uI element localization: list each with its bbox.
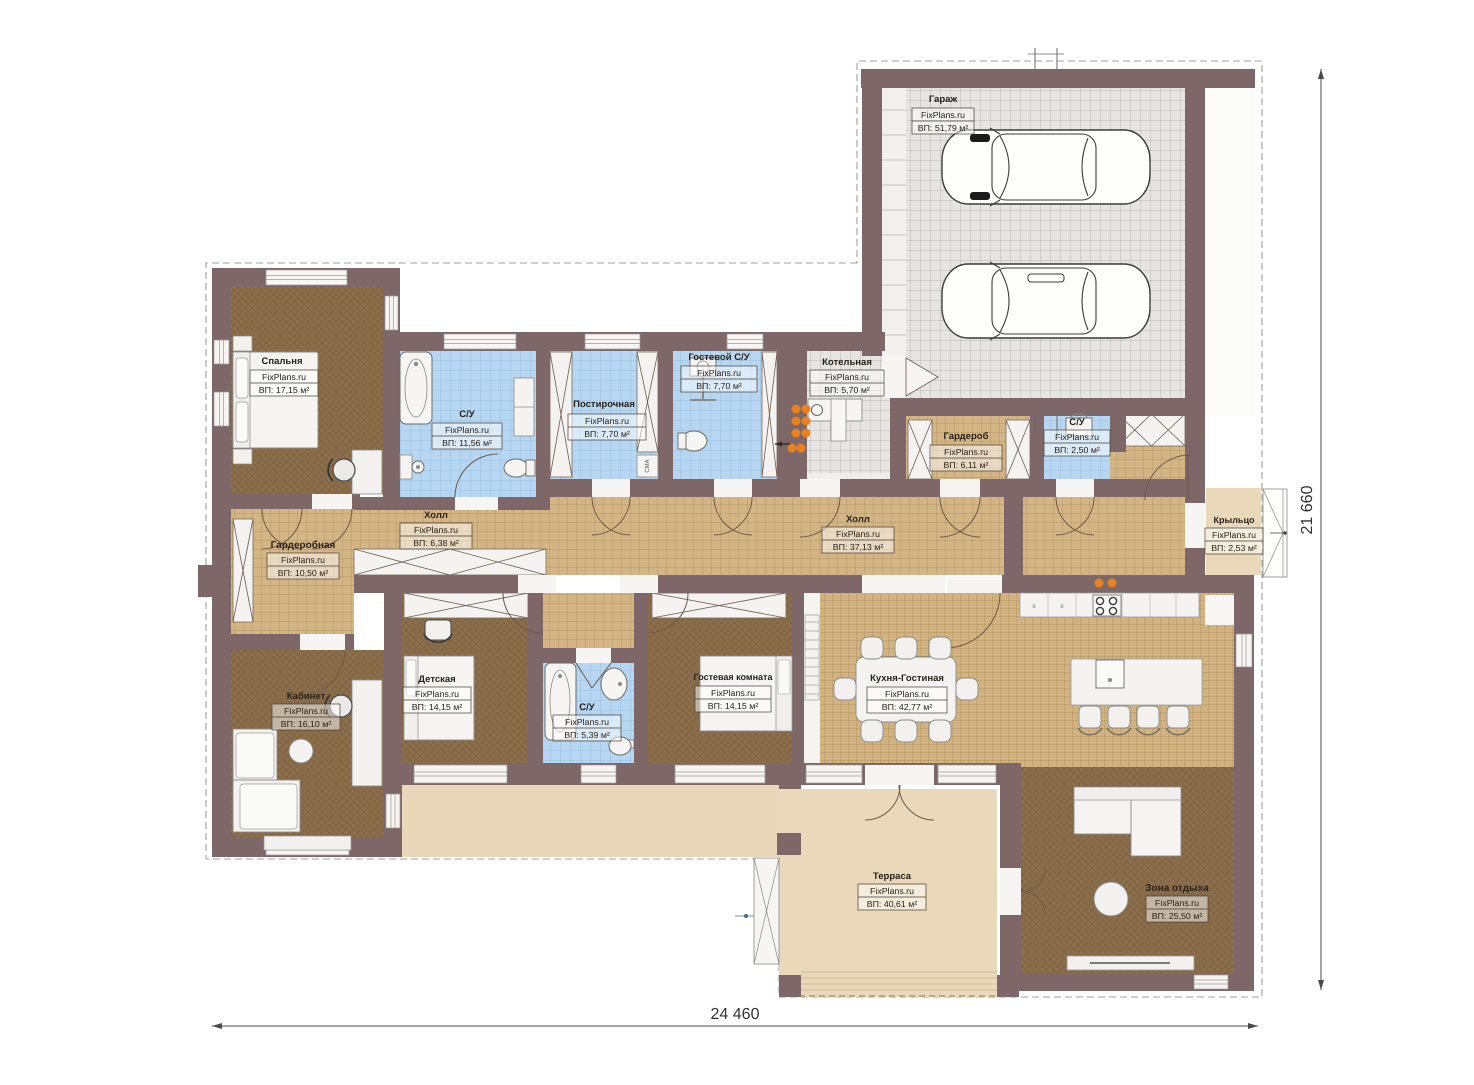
svg-text:Терраса: Терраса — [873, 871, 912, 882]
svg-text:FixPlans.ru: FixPlans.ru — [445, 425, 489, 435]
svg-text:FixPlans.ru: FixPlans.ru — [1212, 530, 1256, 540]
svg-text:ВП: 37,13 м²: ВП: 37,13 м² — [833, 542, 884, 552]
svg-text:Гардероб: Гардероб — [944, 431, 989, 442]
svg-text:ВП: 6,11 м²: ВП: 6,11 м² — [944, 460, 989, 470]
svg-text:FixPlans.ru: FixPlans.ru — [944, 447, 988, 457]
svg-text:ВП: 2,50 м²: ВП: 2,50 м² — [1054, 445, 1100, 455]
svg-text:FixPlans.ru: FixPlans.ru — [415, 689, 459, 699]
svg-text:ВП: 10,50 м²: ВП: 10,50 м² — [278, 568, 329, 578]
svg-text:Крыльцо: Крыльцо — [1214, 515, 1255, 525]
svg-text:24 460: 24 460 — [711, 1006, 760, 1023]
svg-text:ВП: 51,79 м²: ВП: 51,79 м² — [918, 123, 969, 133]
svg-text:FixPlans.ru: FixPlans.ru — [284, 706, 328, 716]
svg-text:ВП: 5,70 м²: ВП: 5,70 м² — [824, 385, 870, 395]
svg-text:С/У: С/У — [579, 702, 595, 713]
svg-text:FixPlans.ru: FixPlans.ru — [711, 688, 755, 698]
svg-text:FixPlans.ru: FixPlans.ru — [1155, 898, 1199, 908]
svg-text:ВП: 11,56 м²: ВП: 11,56 м² — [442, 438, 492, 448]
svg-text:ВП: 25,50 м²: ВП: 25,50 м² — [1152, 911, 1203, 921]
svg-text:Гостевой С/У: Гостевой С/У — [688, 352, 749, 363]
svg-text:FixPlans.ru: FixPlans.ru — [281, 555, 325, 565]
svg-text:С/У: С/У — [1069, 417, 1085, 428]
svg-text:ВП: 6,38 м²: ВП: 6,38 м² — [413, 538, 459, 548]
svg-text:Холл: Холл — [846, 514, 870, 525]
svg-text:FixPlans.ru: FixPlans.ru — [697, 368, 741, 378]
svg-text:Котельная: Котельная — [822, 357, 872, 368]
svg-text:Спальня: Спальня — [261, 356, 302, 367]
svg-text:ВП: 14,15 м²: ВП: 14,15 м² — [708, 701, 759, 711]
svg-text:Кухня-Гостиная: Кухня-Гостиная — [870, 673, 944, 684]
svg-text:x: x — [1060, 603, 1064, 610]
svg-text:Детская: Детская — [418, 674, 455, 685]
svg-text:FixPlans.ru: FixPlans.ru — [885, 689, 929, 699]
svg-text:FixPlans.ru: FixPlans.ru — [825, 372, 869, 382]
svg-text:FixPlans.ru: FixPlans.ru — [1055, 432, 1099, 442]
svg-text:FixPlans.ru: FixPlans.ru — [870, 886, 914, 896]
svg-text:FixPlans.ru: FixPlans.ru — [414, 525, 458, 535]
svg-text:x: x — [1032, 603, 1036, 610]
svg-text:ВП: 40,61 м²: ВП: 40,61 м² — [867, 899, 918, 909]
svg-text:ВП: 7,70 м²: ВП: 7,70 м² — [696, 381, 742, 391]
svg-text:Холл: Холл — [424, 510, 448, 521]
svg-text:FixPlans.ru: FixPlans.ru — [565, 717, 609, 727]
svg-text:FixPlans.ru: FixPlans.ru — [836, 529, 880, 539]
svg-text:ВП: 42,77 м²: ВП: 42,77 м² — [882, 702, 933, 712]
svg-text:Гардеробная: Гардеробная — [271, 540, 336, 551]
svg-text:FixPlans.ru: FixPlans.ru — [262, 372, 306, 382]
svg-text:Постирочная: Постирочная — [573, 399, 635, 410]
svg-text:Кабинет: Кабинет — [287, 691, 326, 702]
svg-text:Зона отдыха: Зона отдыха — [1145, 883, 1209, 894]
svg-text:Гостевая комната: Гостевая комната — [694, 672, 774, 682]
svg-text:С/У: С/У — [459, 409, 475, 420]
svg-text:ВП: 16,10 м²: ВП: 16,10 м² — [281, 719, 332, 729]
svg-text:21 660: 21 660 — [1299, 485, 1316, 534]
svg-text:ВП: 17,15 м²: ВП: 17,15 м² — [259, 385, 310, 395]
svg-text:СМА: СМА — [644, 459, 651, 472]
svg-text:ВП: 2,53 м²: ВП: 2,53 м² — [1211, 543, 1257, 553]
svg-text:ВП: 7,70 м²: ВП: 7,70 м² — [584, 429, 630, 439]
svg-text:ВП: 14,15 м²: ВП: 14,15 м² — [412, 702, 463, 712]
svg-text:FixPlans.ru: FixPlans.ru — [921, 110, 965, 120]
svg-text:FixPlans.ru: FixPlans.ru — [585, 416, 629, 426]
svg-text:ВП: 5,39 м²: ВП: 5,39 м² — [564, 730, 610, 740]
svg-text:Гараж: Гараж — [929, 94, 958, 105]
